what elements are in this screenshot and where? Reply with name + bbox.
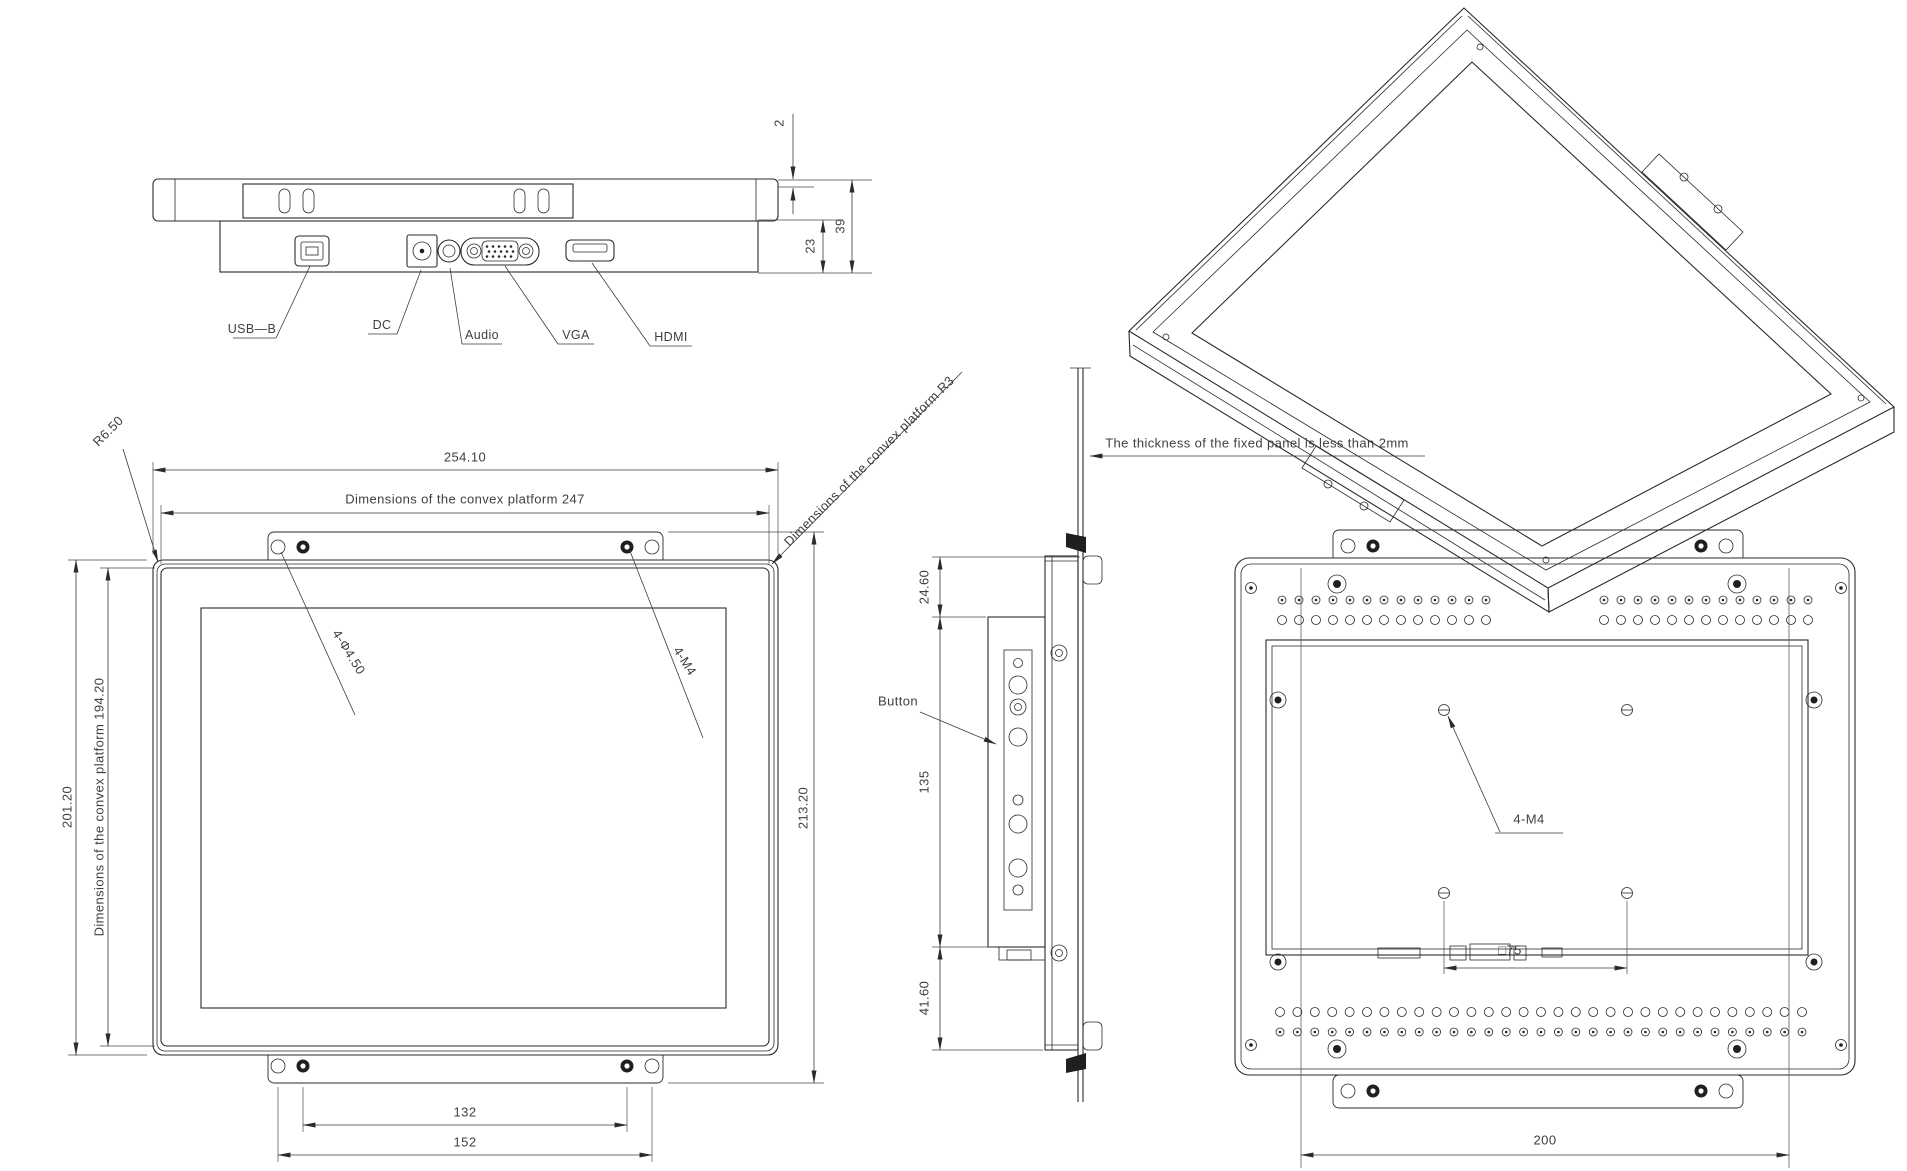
dim-platform-height: Dimensions of the convex platform 194.20 xyxy=(93,678,106,937)
dim-platform-width: Dimensions of the convex platform 247 xyxy=(345,493,585,506)
audio-label: Audio xyxy=(465,329,499,342)
dim-mount-span: 200 xyxy=(1534,1134,1557,1147)
hdmi-connector-icon xyxy=(566,240,614,261)
dim-overall-width: 254.10 xyxy=(444,451,486,464)
dim-overall-depth: 39 xyxy=(834,218,847,233)
callout-thread-holes-rear: 4-M4 xyxy=(1513,813,1544,826)
dim-overall-height: 201.20 xyxy=(61,786,74,828)
audio-jack-icon xyxy=(438,240,460,262)
dim-outer-hole-span: 152 xyxy=(454,1136,477,1149)
vga-connector-icon xyxy=(461,238,539,265)
dim-mounting-height: 213.20 xyxy=(797,787,810,829)
vga-label: VGA xyxy=(562,329,590,342)
button-board xyxy=(988,617,1045,947)
dim-bezel-lip: 2 xyxy=(773,119,786,127)
usb-b-label: USB—B xyxy=(228,323,277,336)
dc-jack-icon xyxy=(407,235,437,267)
rear-view-linework xyxy=(1235,530,1855,1168)
hdmi-label: HDMI xyxy=(654,331,688,344)
dim-vesa-spacing: □75 xyxy=(1498,944,1522,957)
engineering-drawing-canvas: USB—B DC Audio VGA HDMI 2 39 23 254.10 D… xyxy=(0,0,1907,1171)
dim-housing-depth: 23 xyxy=(804,238,817,253)
isometric-view-linework xyxy=(1129,8,1894,612)
drawing-linework xyxy=(0,0,1907,1171)
dim-bottom-offset: 41.60 xyxy=(918,981,931,1016)
usb-b-connector-icon xyxy=(295,236,329,266)
dim-button-board-height: 135 xyxy=(918,771,931,794)
button-label: Button xyxy=(878,695,918,708)
dc-label: DC xyxy=(373,319,392,332)
dim-inner-hole-span: 132 xyxy=(454,1106,477,1119)
fixed-panel-note: The thickness of the fixed panel is less… xyxy=(1105,437,1409,450)
dim-top-offset: 24.60 xyxy=(918,570,931,605)
top-view-linework xyxy=(153,114,872,346)
